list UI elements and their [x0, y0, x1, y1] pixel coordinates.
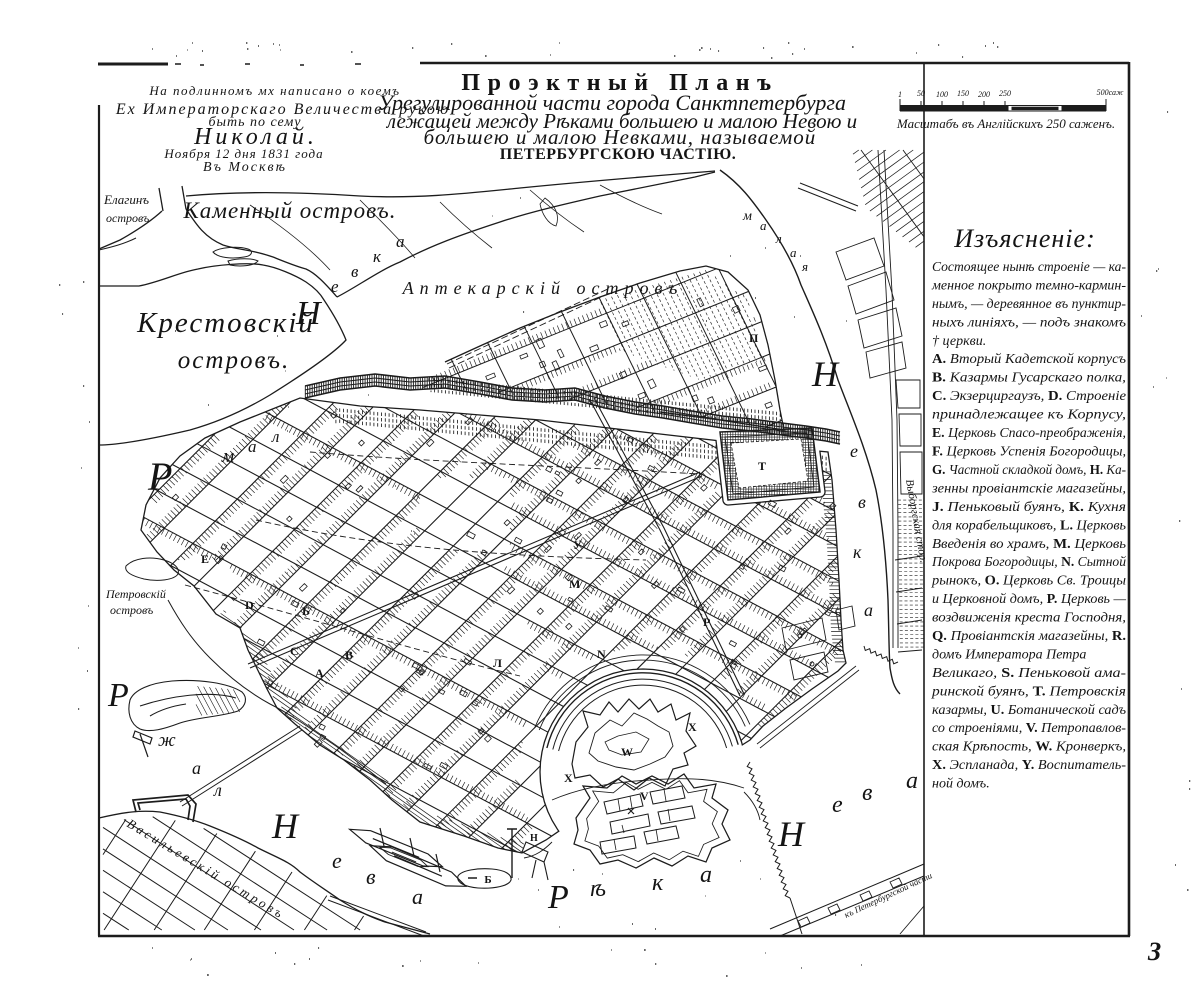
svg-text:ной домъ.: ной домъ.	[932, 777, 990, 792]
svg-text:к: к	[652, 870, 664, 896]
svg-text:к: к	[373, 247, 382, 266]
svg-text:W: W	[621, 745, 633, 759]
svg-text:менное покрыто темно-кармин-: менное покрыто темно-кармин-	[931, 278, 1126, 293]
svg-text:Н: Н	[530, 833, 538, 844]
svg-text:ж: ж	[158, 730, 176, 751]
svg-text:Б: Б	[484, 874, 491, 886]
svg-text:воздвиженія креста Господня,: воздвиженія креста Господня,	[932, 611, 1126, 626]
svg-text:Р: Р	[547, 879, 569, 916]
svg-text:Т: Т	[758, 459, 766, 473]
svg-text:J. Пеньковый буянъ, К. Кухня: J. Пеньковый буянъ, К. Кухня	[932, 500, 1126, 515]
svg-text:л: л	[213, 780, 222, 800]
svg-text:а: а	[760, 218, 767, 233]
svg-text:50: 50	[917, 89, 925, 98]
svg-text:а: а	[412, 884, 423, 909]
svg-text:G. Частной складкой домъ, H. К: G. Частной складкой домъ, H. Ка-	[932, 463, 1126, 478]
svg-text:а: а	[864, 600, 873, 620]
svg-text:Въ Москвѣ: Въ Москвѣ	[203, 160, 287, 175]
svg-text:а: а	[790, 245, 797, 260]
svg-text:Н: Н	[271, 806, 300, 846]
svg-text:а: а	[700, 862, 712, 888]
svg-text:Н: Н	[777, 814, 806, 854]
svg-text:я: я	[801, 259, 808, 274]
svg-text:N: N	[597, 647, 606, 661]
svg-text:Великаго, S. Пеньковой ама-: Великаго, S. Пеньковой ама-	[932, 666, 1126, 681]
svg-text:E. Церковь Спасо-преображенія,: E. Церковь Спасо-преображенія,	[932, 426, 1126, 441]
svg-text:Л: Л	[493, 656, 502, 670]
svg-text:островъ: островъ	[106, 211, 149, 225]
svg-text:A. Вторый Кадетской корпусъ: A. Вторый Кадетской корпусъ	[932, 352, 1126, 367]
svg-text:Q. Провіантскія магазейны, R.: Q. Провіантскія магазейны, R.	[932, 629, 1126, 644]
svg-text:е: е	[332, 848, 342, 873]
svg-text:Изъясненіе:: Изъясненіе:	[953, 224, 1095, 253]
svg-text:З: З	[1147, 937, 1161, 966]
svg-text:ныхъ линіяхъ, — подъ знакомъ: ныхъ линіяхъ, — подъ знакомъ	[932, 315, 1126, 330]
svg-text:со строеніями, V. Петропавлов-: со строеніями, V. Петропавлов-	[932, 721, 1126, 736]
svg-text:Масштабъ въ Англійскихъ 250 са: Масштабъ въ Англійскихъ 250 саженъ.	[896, 116, 1115, 131]
svg-text:100: 100	[936, 90, 948, 99]
svg-text:островъ.: островъ.	[178, 347, 290, 374]
svg-text:м: м	[221, 446, 234, 467]
svg-text:л: л	[271, 427, 279, 446]
svg-text:F. Церковь Успенія Богородицы,: F. Церковь Успенія Богородицы,	[932, 445, 1126, 460]
svg-text:1: 1	[898, 90, 902, 99]
svg-text:Покрова Богородицы, N. Сытной: Покрова Богородицы, N. Сытной	[931, 555, 1126, 570]
svg-text:Васильевскій островъ: Васильевскій островъ	[124, 816, 287, 922]
svg-text:150: 150	[957, 89, 969, 98]
svg-text:V: V	[640, 789, 649, 803]
svg-text:Петровскій: Петровскій	[105, 587, 166, 601]
svg-text:а: а	[248, 437, 257, 456]
svg-text:Е: Е	[201, 552, 209, 566]
svg-text:островъ: островъ	[110, 603, 153, 617]
svg-text:рынокъ, O. Церковь Св. Троицы: рынокъ, O. Церковь Св. Троицы	[931, 574, 1126, 589]
svg-text:е: е	[832, 792, 843, 818]
svg-text:домъ Императора Петра: домъ Императора Петра	[932, 648, 1086, 663]
svg-text:ПЕТЕРБУРГСКОЮ ЧАСТІЮ.: ПЕТЕРБУРГСКОЮ ЧАСТІЮ.	[500, 146, 736, 163]
svg-text:для корабельщиковъ, L. Церковь: для корабельщиковъ, L. Церковь	[932, 518, 1126, 533]
svg-text:Х: Х	[688, 720, 697, 734]
svg-text:зенны провіантскіе магазейны,: зенны провіантскіе магазейны,	[931, 481, 1126, 496]
svg-text:ѣ: ѣ	[590, 876, 606, 902]
svg-text:къ Петербургской части: къ Петербургской части	[843, 870, 934, 920]
svg-text:е: е	[331, 277, 339, 296]
svg-text:Х: Х	[564, 771, 573, 785]
svg-text:А: А	[315, 666, 324, 680]
svg-text:D: D	[245, 598, 254, 612]
svg-text:нымъ, — деревянное въ пунктир-: нымъ, — деревянное въ пунктир-	[932, 297, 1126, 312]
svg-text:B. Казармы Гусарскаго полка,: B. Казармы Гусарскаго полка,	[932, 371, 1126, 386]
svg-text:X. Эспланада, Y. Воспитатель-: X. Эспланада, Y. Воспитатель-	[932, 758, 1126, 773]
svg-text:Каменный островъ.: Каменный островъ.	[183, 198, 397, 223]
svg-text:л: л	[775, 231, 782, 246]
svg-text:Аптекарскій островъ: Аптекарскій островъ	[402, 278, 684, 298]
svg-text:500саж: 500саж	[1097, 88, 1124, 97]
svg-text:казармы, U. Ботанической садъ: казармы, U. Ботанической садъ	[932, 703, 1126, 718]
svg-text:На подлинномъ мх написано о ко: На подлинномъ мх написано о коемъ	[148, 83, 400, 98]
svg-text:ринской буянъ, T. Петровскія: ринской буянъ, T. Петровскія	[931, 684, 1126, 699]
svg-text:В: В	[345, 648, 353, 662]
svg-text:Введенія во храмъ, M. Церковь: Введенія во храмъ, M. Церковь	[932, 537, 1126, 552]
svg-text:принадлежащее къ Корпусу,: принадлежащее къ Корпусу,	[932, 408, 1126, 423]
svg-text:Р: Р	[107, 677, 129, 714]
svg-text:в: в	[366, 864, 376, 889]
svg-text:к: к	[853, 542, 862, 562]
svg-text:200: 200	[978, 90, 990, 99]
svg-text:и Церковной домъ, P. Церковь —: и Церковной домъ, P. Церковь —	[932, 592, 1127, 607]
svg-text:250: 250	[999, 89, 1011, 98]
svg-text:е: е	[850, 441, 858, 461]
svg-text:а: а	[906, 768, 918, 794]
svg-text:в: в	[351, 262, 359, 281]
svg-text:Выборгская стор.: Выборгская стор.	[903, 478, 929, 563]
svg-text:а: а	[192, 758, 201, 778]
svg-text:М: М	[569, 577, 580, 591]
svg-text:Елагинъ: Елагинъ	[103, 192, 149, 207]
svg-text:П: П	[749, 331, 759, 345]
svg-text:† церкви.: † церкви.	[932, 334, 986, 349]
svg-text:Р: Р	[147, 454, 172, 499]
svg-text:в: в	[862, 780, 872, 806]
svg-text:м: м	[742, 209, 752, 224]
svg-text:C. Экзерциргаузъ, D. Строеніе: C. Экзерциргаузъ, D. Строеніе	[932, 389, 1126, 404]
svg-text:Р: Р	[703, 615, 710, 629]
svg-text:С: С	[290, 644, 299, 658]
svg-text:в: в	[858, 492, 866, 512]
svg-text:Состоящее нынѣ строеніе — ка-: Состоящее нынѣ строеніе — ка-	[932, 260, 1126, 275]
svg-text:ская Крѣпость, W. Кронверкъ,: ская Крѣпость, W. Кронверкъ,	[932, 740, 1126, 755]
svg-text:Крестовскій: Крестовскій	[136, 307, 315, 339]
svg-text:У: У	[573, 538, 582, 552]
svg-text:Н: Н	[811, 354, 840, 394]
svg-text:Ноября 12 дня 1831 года: Ноября 12 дня 1831 года	[163, 146, 323, 161]
svg-text:Б: Б	[302, 604, 310, 618]
